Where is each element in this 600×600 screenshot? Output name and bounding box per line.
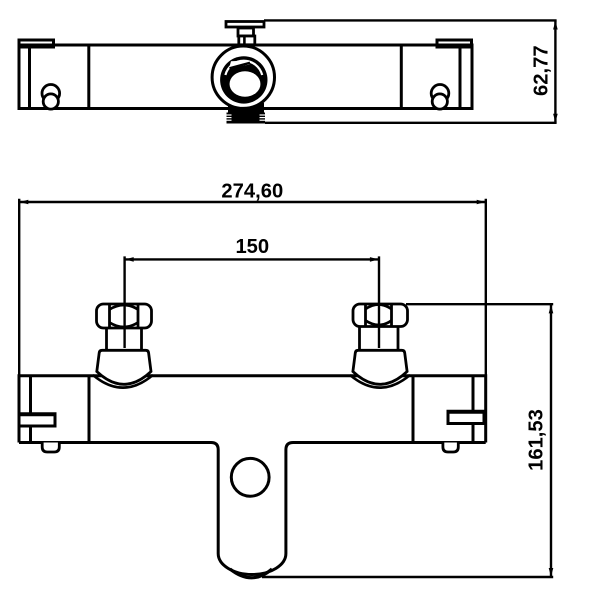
svg-text:62,77: 62,77: [531, 45, 553, 96]
svg-text:161,53: 161,53: [526, 409, 548, 471]
svg-text:274,60: 274,60: [221, 180, 283, 202]
svg-text:150: 150: [235, 236, 269, 258]
